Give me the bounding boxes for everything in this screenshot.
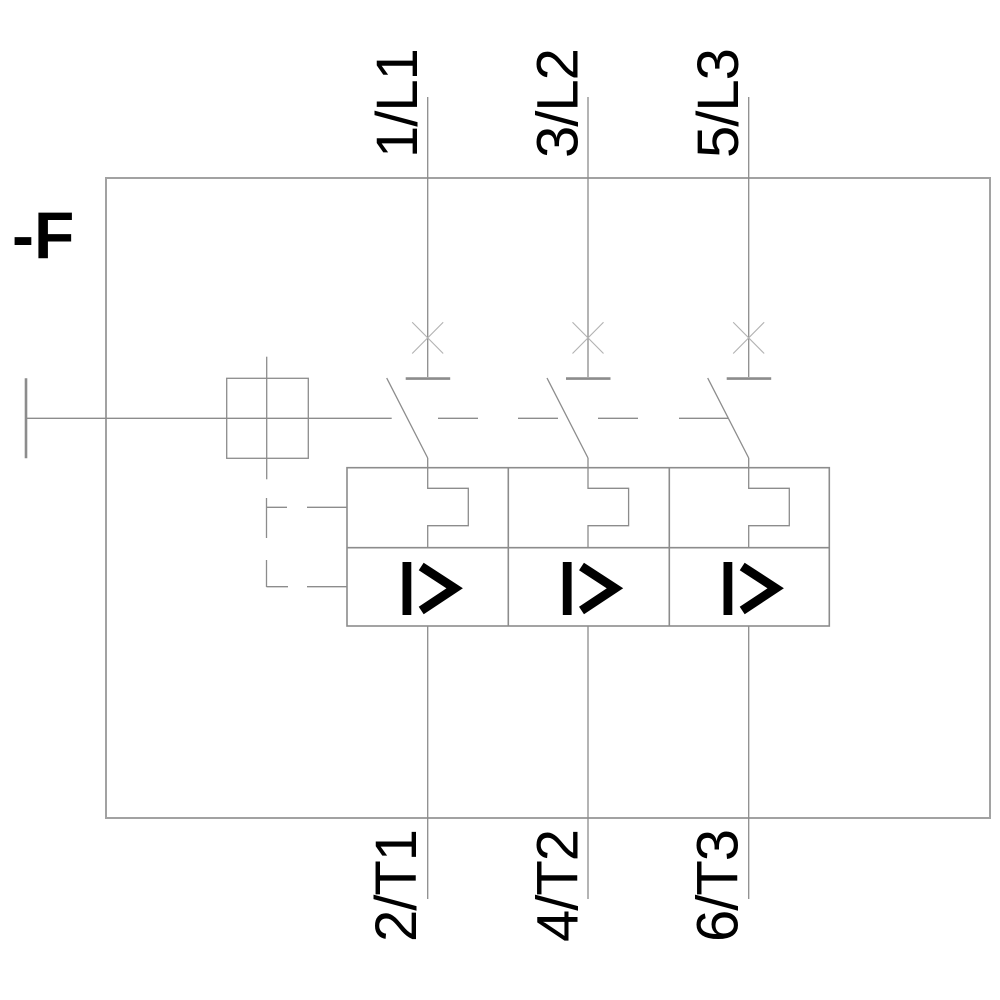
trip-linkage (267, 418, 729, 587)
thermal-overload-release-symbol (428, 458, 469, 548)
terminal-label-bottom-2: 4/T2 (526, 830, 591, 942)
overcurrent-icon (403, 562, 455, 615)
device-boundary-box (106, 178, 990, 818)
schematic-page: -F 1/L1 3/L2 5/L3 2/T1 4/T2 6/T3 (0, 0, 1000, 1000)
pole-3 (708, 97, 790, 899)
overcurrent-icon (563, 562, 615, 615)
labels: -F 1/L1 3/L2 5/L3 2/T1 4/T2 6/T3 (12, 49, 751, 942)
thermal-overload-release-symbol (588, 458, 629, 548)
operating-mechanism (26, 357, 392, 480)
overcurrent-icon (724, 562, 776, 615)
pole-2 (547, 97, 629, 899)
magnetic-release-symbols (403, 562, 776, 615)
pole-1 (387, 97, 469, 899)
terminal-label-top-3: 5/L3 (686, 49, 751, 158)
device-designation-label: -F (12, 198, 74, 272)
circuit-diagram: -F 1/L1 3/L2 5/L3 2/T1 4/T2 6/T3 (0, 0, 1000, 1000)
terminal-label-top-1: 1/L1 (365, 49, 430, 158)
thermal-overload-release-symbol (749, 458, 790, 548)
conductor-lines (26, 97, 789, 899)
terminal-label-bottom-3: 6/T3 (686, 830, 751, 942)
terminal-label-bottom-1: 2/T1 (364, 830, 429, 942)
contact-blade-line (387, 378, 428, 458)
terminal-label-top-2: 3/L2 (526, 49, 591, 158)
